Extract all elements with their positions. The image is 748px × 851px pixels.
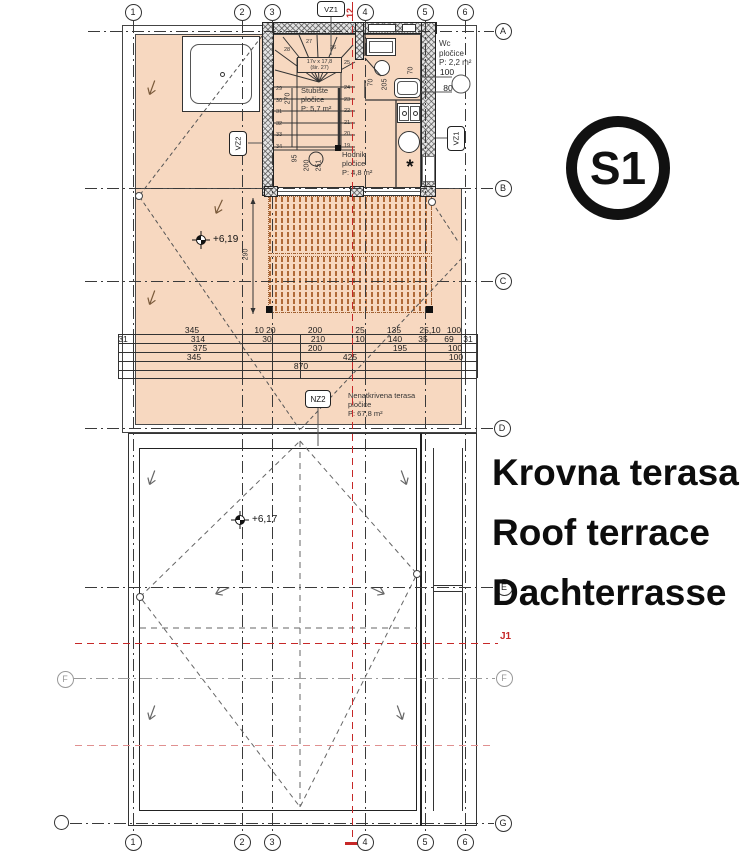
grid-bubble-row-C: C <box>495 273 512 290</box>
stubiste-label: StubištepločiceP: 5,7 m² <box>301 86 331 113</box>
dim-value: 35 <box>418 334 427 344</box>
terasa-label: Nenatkrivena terasapločiceP: 67,8 m² <box>348 391 415 418</box>
section-12-label: 12 <box>345 8 355 18</box>
terrace-title-de: Dachterrasse <box>492 563 748 623</box>
drain-point <box>136 193 143 200</box>
elevation-upper: +6,19 <box>213 234 238 245</box>
grid-bubble-col-3-bottom: 3 <box>264 834 281 851</box>
stair-numbers-left: 2930 3132 3334 <box>276 86 282 150</box>
terrace-title-en: Roof terrace <box>492 503 748 563</box>
stair-spec-width: (šir. 27) <box>310 65 328 72</box>
drain-point <box>137 594 144 601</box>
dim-value: 345 <box>187 352 201 362</box>
dim-290-line <box>251 198 256 314</box>
tag-vz1-top: VZ1 <box>317 1 345 17</box>
hodnik-label: HodnikpločiceP: 4,8 m² <box>342 150 372 177</box>
grid-bubble-col-2-bottom: 2 <box>234 834 251 851</box>
tag-nz2: NZ2 <box>305 390 331 408</box>
grid-bubble-col-5-top: 5 <box>417 4 434 21</box>
dim-205: 205 <box>382 70 389 100</box>
terrace-title: Krovna terasa Roof terrace Dachterrasse <box>492 443 748 623</box>
grid-bubble-row-B: B <box>495 180 512 197</box>
grid-bubble-col-2-top: 2 <box>234 4 251 21</box>
benchmark-upper <box>192 231 210 249</box>
grid-bubble-col-4-bottom: 4 <box>357 834 374 851</box>
grid-bubble-col-1-bottom: 1 <box>125 834 142 851</box>
washing-machine-symbol: * <box>400 158 420 178</box>
dim-70a: 70 <box>368 68 375 98</box>
winder-num: 28 <box>284 47 290 53</box>
grid-bubble-col-1-top: 1 <box>125 4 142 21</box>
section-line-12 <box>352 2 353 845</box>
grid-bubble-col-5-bottom: 5 <box>417 834 434 851</box>
winder-num: 26 <box>330 45 336 51</box>
dim-70b: 70 <box>408 56 415 86</box>
drain-point <box>429 199 436 206</box>
benchmark-lower <box>231 511 249 529</box>
slope-arrows-lower <box>146 469 410 721</box>
floor-plan-page: { "title_block": { "line1": "Krovna tera… <box>0 0 748 847</box>
grid-bubble-col-4-top: 4 <box>357 4 374 21</box>
dim-value: 870 <box>294 361 308 371</box>
leader-lines <box>248 17 470 446</box>
dim-value: 30 <box>262 334 271 344</box>
lower-drainage-diamond <box>140 441 417 807</box>
dim-290: 290 <box>243 240 250 270</box>
dim-200: 200 <box>304 151 311 181</box>
dim-value: 100 <box>449 352 463 362</box>
grid-bubble-col-6-bottom: 6 <box>457 834 474 851</box>
grid-bubble-row-A: A <box>495 23 512 40</box>
section-line-j1 <box>75 643 498 644</box>
elevation-lower: +6,17 <box>252 514 277 525</box>
terrace-title-hr: Krovna terasa <box>492 443 748 503</box>
wc-dim-100: 100 <box>440 67 454 77</box>
dim-95: 95 <box>292 144 299 174</box>
grid-bubble-row-G: G <box>495 815 512 832</box>
winder-num: 27 <box>306 39 312 45</box>
grid-bubble-row-D: D <box>494 420 511 437</box>
wc-dim-80: 80 <box>443 83 452 93</box>
winder-num: 25 <box>344 60 350 66</box>
j1-label: J1 <box>500 631 511 642</box>
wc-label: WcpločiceP: 2,2 m² <box>439 39 471 68</box>
stair-spec-box: 17v x 17,8 (šir. 27) <box>297 57 342 73</box>
dim-value: 10 <box>355 334 364 344</box>
grid-bubble-col-3-top: 3 <box>264 4 281 21</box>
dim-value: 31 <box>463 334 472 344</box>
dim-251: 251 <box>316 151 323 181</box>
dim-value: 425 <box>343 352 357 362</box>
dim-value: 195 <box>393 343 407 353</box>
stair-numbers-right: 2423 2221 2019 <box>344 85 350 149</box>
dim-value: 31 <box>118 334 127 344</box>
tag-vz1-right: VZ1 <box>447 126 465 151</box>
dim-value: 200 <box>308 343 322 353</box>
slope-arrows <box>146 79 226 306</box>
grid-bubble-row-G-left <box>54 815 69 830</box>
section-line-lower <box>75 745 490 746</box>
tag-vz2: VZ2 <box>229 131 247 156</box>
grid-bubble-row-F-left: F <box>57 671 74 688</box>
grid-bubble-row-F: F <box>496 670 513 687</box>
section-badge-s1: S1 <box>566 116 670 220</box>
drain-point <box>414 571 421 578</box>
grid-bubble-col-6-top: 6 <box>457 4 474 21</box>
dim-270: 270 <box>285 84 292 114</box>
